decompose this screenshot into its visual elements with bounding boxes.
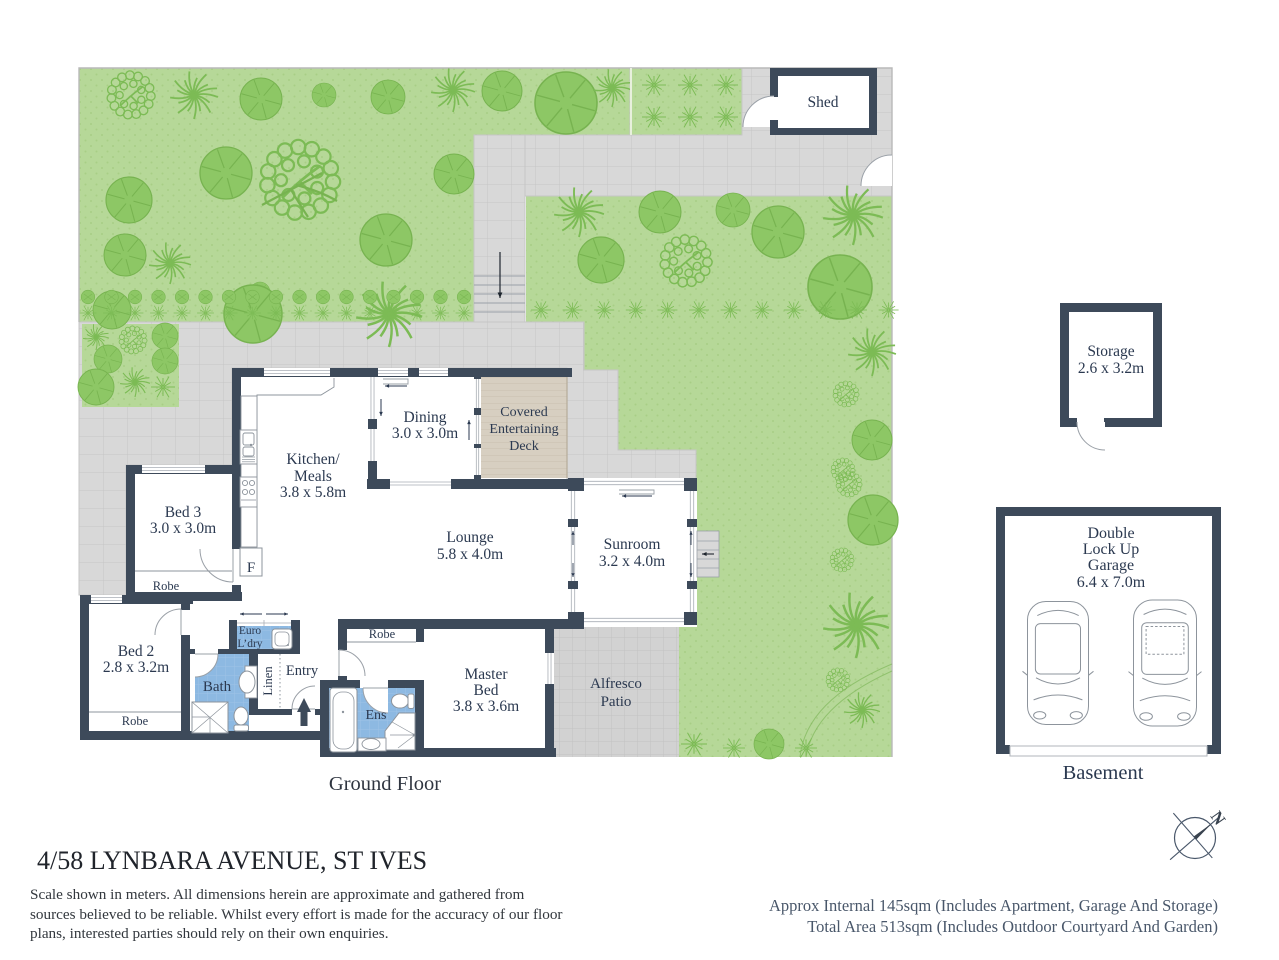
svg-text:Euro: Euro (239, 625, 262, 637)
svg-text:2.8 x 3.2m: 2.8 x 3.2m (103, 659, 169, 676)
svg-text:Basement: Basement (1063, 762, 1144, 784)
svg-text:Bed: Bed (474, 682, 499, 699)
svg-text:Garage: Garage (1088, 557, 1134, 574)
svg-text:Entry: Entry (286, 663, 319, 679)
svg-text:Shed: Shed (808, 94, 839, 111)
svg-text:2.6 x 3.2m: 2.6 x 3.2m (1078, 360, 1144, 377)
svg-text:Ens: Ens (366, 708, 387, 723)
svg-text:3.2 x 4.0m: 3.2 x 4.0m (599, 553, 665, 570)
svg-text:Covered: Covered (500, 405, 547, 420)
svg-text:Scale shown in meters. All dim: Scale shown in meters. All dimensions he… (30, 886, 524, 903)
svg-text:Total Area 513sqm (Includes Ou: Total Area 513sqm (Includes Outdoor Cour… (807, 917, 1218, 936)
svg-text:Patio: Patio (601, 694, 632, 710)
svg-text:3.0 x 3.0m: 3.0 x 3.0m (150, 520, 216, 537)
svg-text:Linen: Linen (261, 666, 275, 696)
svg-text:Robe: Robe (369, 627, 396, 641)
svg-text:Bed 3: Bed 3 (165, 504, 202, 521)
svg-text:Kitchen/: Kitchen/ (286, 451, 340, 468)
svg-text:3.8 x 3.6m: 3.8 x 3.6m (453, 698, 519, 715)
svg-text:Alfresco: Alfresco (590, 676, 642, 692)
svg-text:6.4 x 7.0m: 6.4 x 7.0m (1077, 574, 1146, 591)
svg-text:Robe: Robe (153, 579, 180, 593)
svg-text:Ground Floor: Ground Floor (329, 773, 441, 795)
svg-text:Lounge: Lounge (446, 529, 493, 546)
svg-text:Meals: Meals (294, 468, 332, 485)
svg-text:plans, interested parties shou: plans, interested parties should rely on… (30, 925, 389, 942)
svg-text:3.8 x 5.8m: 3.8 x 5.8m (280, 484, 346, 501)
svg-text:L’dry: L’dry (237, 638, 262, 650)
svg-text:Dining: Dining (403, 409, 446, 426)
svg-text:Robe: Robe (122, 714, 149, 728)
svg-text:Bed 2: Bed 2 (118, 643, 155, 660)
svg-text:3.0 x 3.0m: 3.0 x 3.0m (392, 425, 458, 442)
svg-text:Double: Double (1087, 525, 1134, 542)
svg-text:F: F (247, 560, 255, 576)
svg-text:Bath: Bath (203, 679, 232, 695)
svg-text:Storage: Storage (1087, 343, 1134, 360)
svg-text:Deck: Deck (509, 439, 539, 454)
svg-text:5.8 x 4.0m: 5.8 x 4.0m (437, 546, 503, 563)
svg-text:Lock Up: Lock Up (1083, 541, 1139, 558)
svg-text:Approx Internal 145sqm (Incl: Approx Internal 145sqm (Includes Apartme… (769, 896, 1218, 915)
svg-text:Entertaining: Entertaining (489, 422, 558, 437)
svg-text:Sunroom: Sunroom (604, 536, 661, 553)
svg-text:4/58 LYNBARA AVENUE, ST IVES: 4/58 LYNBARA AVENUE, ST IVES (37, 846, 427, 875)
svg-text:sources believed to be reliab: sources believed to be reliable. Whilst … (30, 906, 562, 923)
svg-text:Master: Master (464, 666, 508, 683)
